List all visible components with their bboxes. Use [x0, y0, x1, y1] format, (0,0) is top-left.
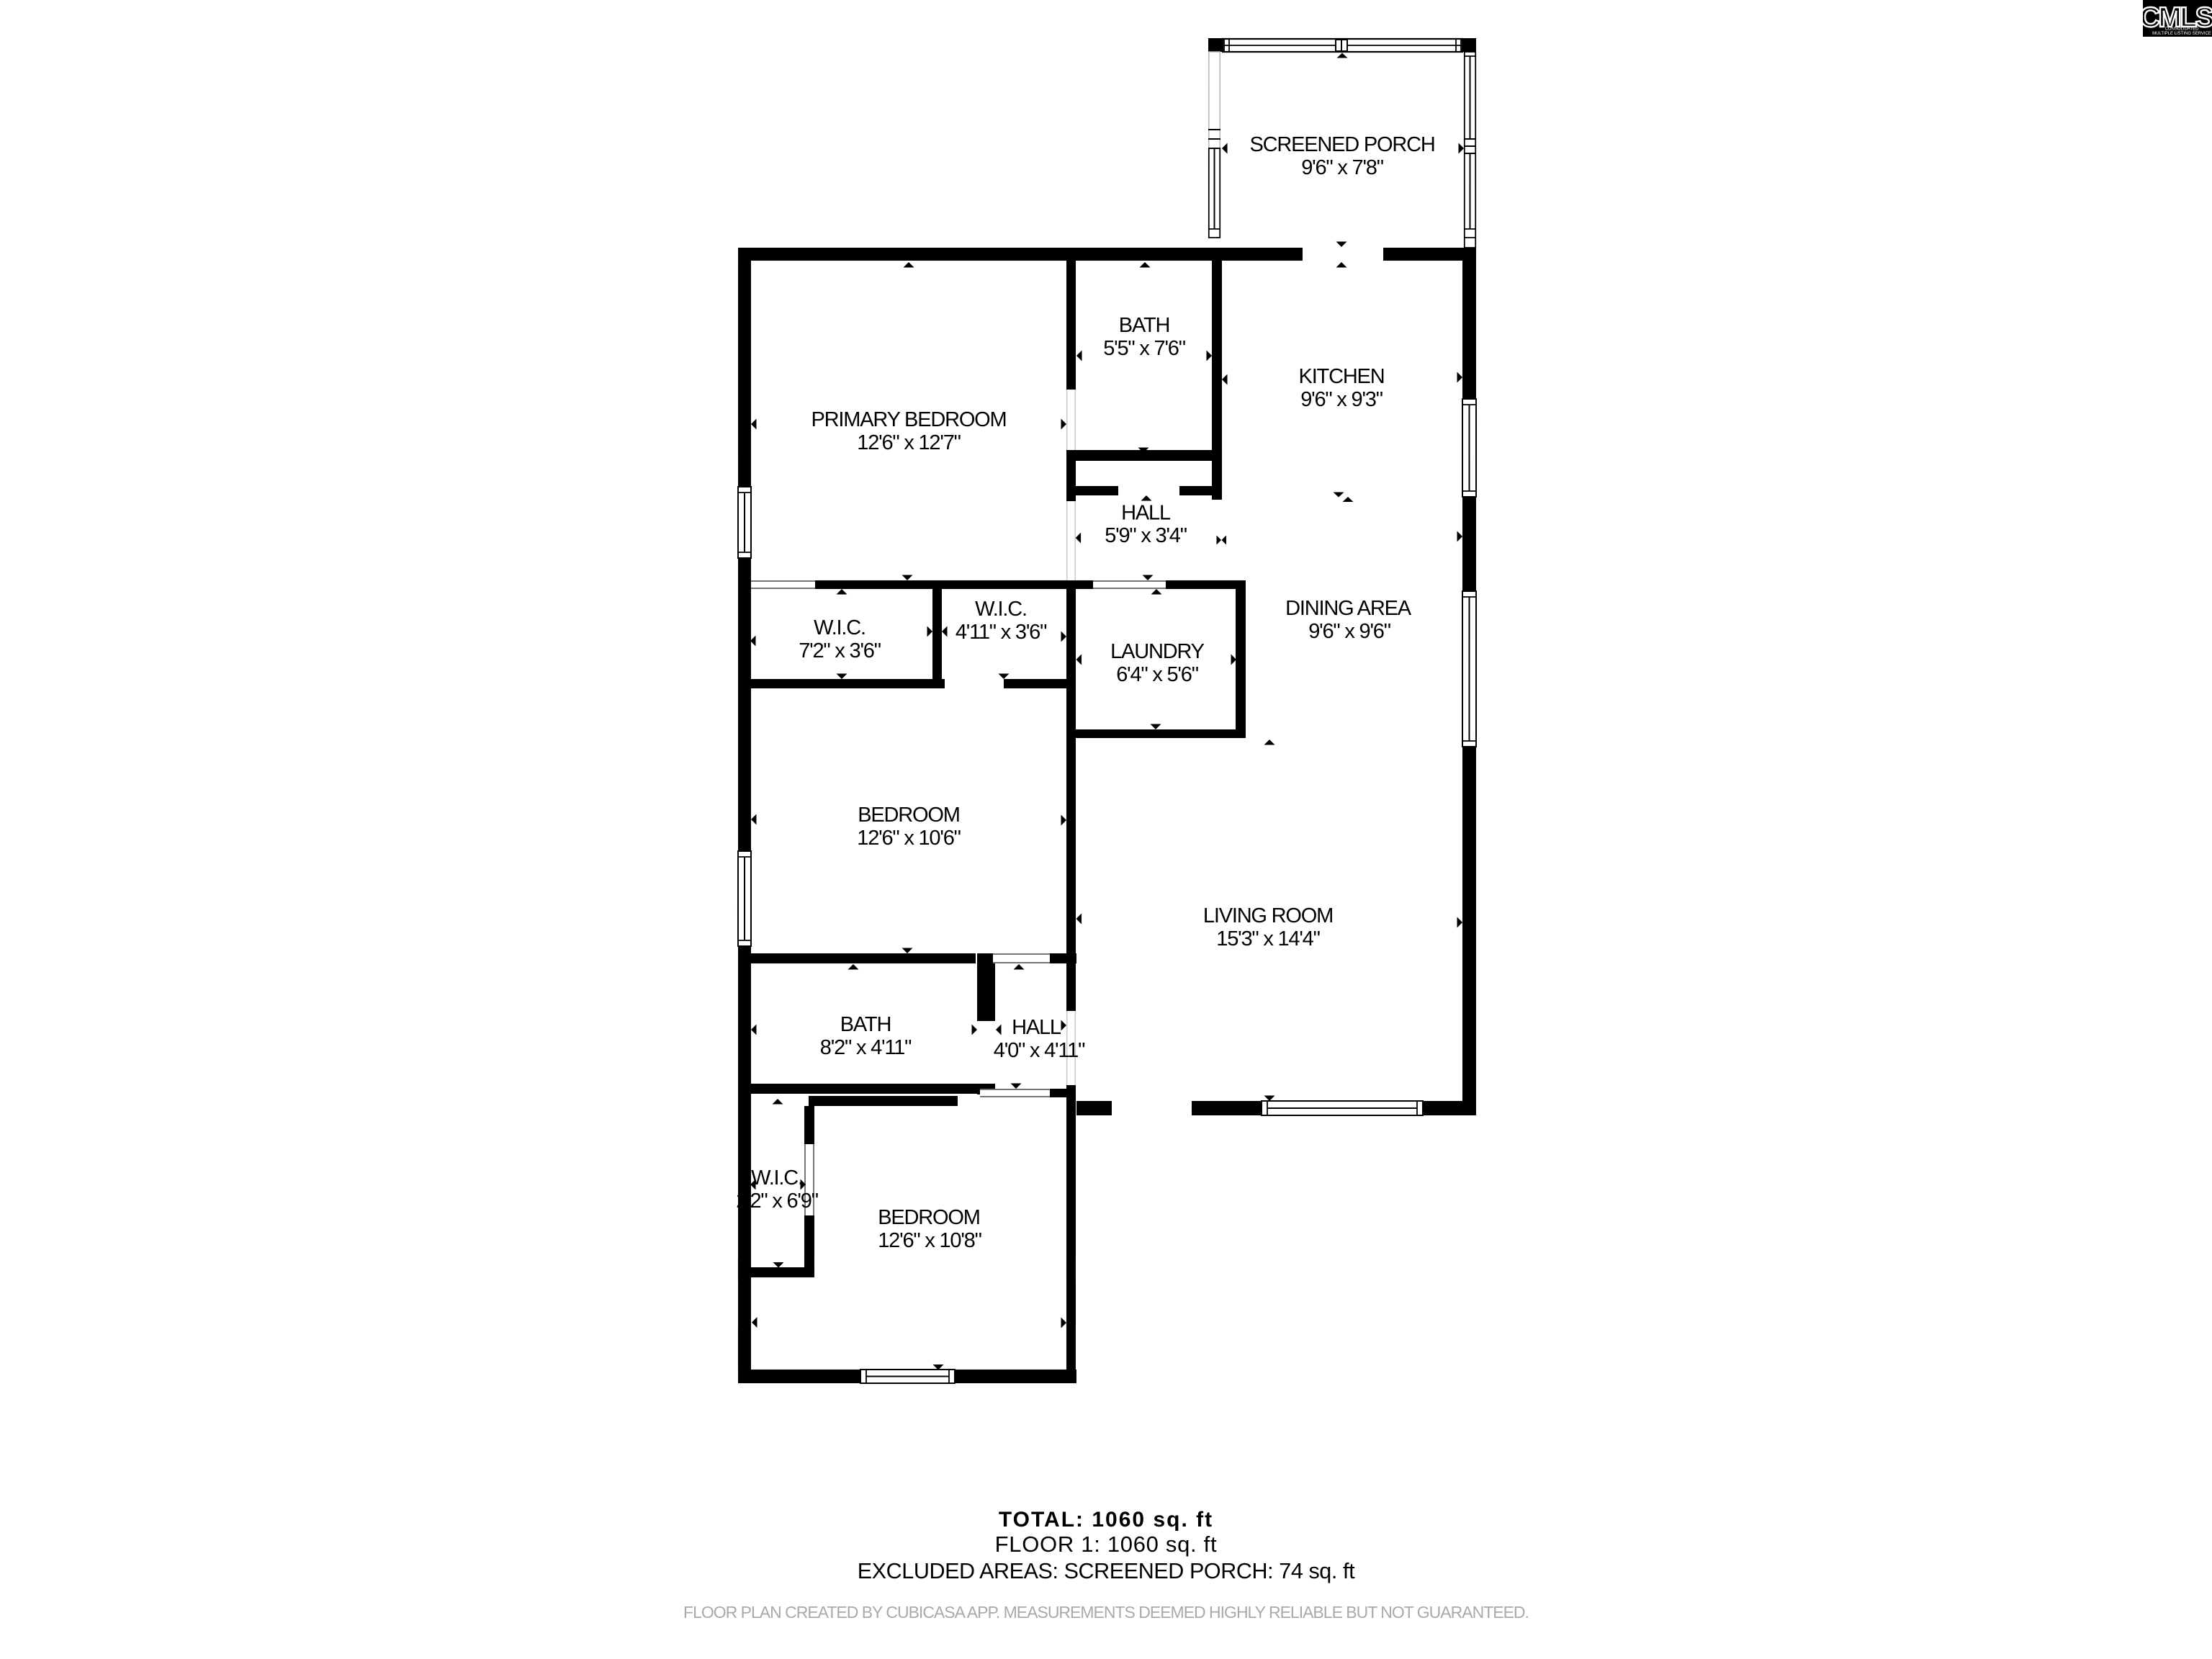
svg-text:W.I.C.: W.I.C.: [814, 616, 866, 639]
svg-text:12'6" x 12'7": 12'6" x 12'7": [857, 431, 961, 454]
svg-text:8'2" x 4'11": 8'2" x 4'11": [820, 1036, 912, 1059]
svg-text:6'4" x 5'6": 6'4" x 5'6": [1116, 663, 1198, 686]
svg-text:SCREENED PORCH: SCREENED PORCH: [1249, 133, 1434, 156]
svg-text:FLOOR PLAN CREATED BY CUBICASA: FLOOR PLAN CREATED BY CUBICASA APP. MEAS…: [683, 1603, 1529, 1622]
svg-text:HALL: HALL: [1121, 502, 1171, 525]
svg-text:LAUNDRY: LAUNDRY: [1110, 640, 1205, 663]
svg-text:CONSOLIDATED: CONSOLIDATED: [2165, 27, 2200, 32]
svg-text:W.I.C.: W.I.C.: [975, 598, 1027, 621]
svg-text:FLOOR 1: 1060 sq. ft: FLOOR 1: 1060 sq. ft: [995, 1532, 1218, 1557]
svg-text:12'6" x 10'6": 12'6" x 10'6": [857, 827, 961, 850]
svg-text:BEDROOM: BEDROOM: [878, 1206, 979, 1229]
svg-text:HALL: HALL: [1012, 1016, 1061, 1039]
svg-text:5'9" x 3'4": 5'9" x 3'4": [1105, 524, 1187, 547]
svg-text:BEDROOM: BEDROOM: [858, 804, 959, 827]
svg-text:EXCLUDED AREAS: SCREENED PORCH: EXCLUDED AREAS: SCREENED PORCH: 74 sq. f…: [858, 1559, 1355, 1583]
svg-text:4'0" x 4'11": 4'0" x 4'11": [994, 1039, 1085, 1062]
svg-text:12'6" x 10'8": 12'6" x 10'8": [878, 1229, 981, 1252]
svg-text:W.I.C.: W.I.C.: [751, 1166, 803, 1190]
svg-text:15'3" x 14'4": 15'3" x 14'4": [1216, 927, 1320, 950]
svg-text:KITCHEN: KITCHEN: [1299, 365, 1385, 388]
svg-text:BATH: BATH: [840, 1013, 891, 1036]
svg-text:9'6" x 7'8": 9'6" x 7'8": [1301, 156, 1383, 179]
svg-text:9'6" x 9'3": 9'6" x 9'3": [1300, 388, 1382, 411]
svg-text:BATH: BATH: [1119, 314, 1169, 337]
svg-text:PRIMARY BEDROOM: PRIMARY BEDROOM: [811, 408, 1007, 431]
svg-text:4'11" x 3'6": 4'11" x 3'6": [956, 621, 1047, 644]
svg-text:7'2" x 3'6": 7'2" x 3'6": [799, 639, 881, 662]
svg-text:LIVING ROOM: LIVING ROOM: [1203, 904, 1333, 927]
svg-text:9'6" x 9'6": 9'6" x 9'6": [1308, 620, 1390, 643]
svg-text:TOTAL: 1060 sq. ft: TOTAL: 1060 sq. ft: [999, 1508, 1213, 1532]
svg-text:MULTIPLE LISTING SERVICE: MULTIPLE LISTING SERVICE: [2152, 32, 2211, 36]
svg-text:DINING AREA: DINING AREA: [1285, 597, 1412, 620]
svg-text:5'5" x 7'6": 5'5" x 7'6": [1103, 337, 1185, 360]
